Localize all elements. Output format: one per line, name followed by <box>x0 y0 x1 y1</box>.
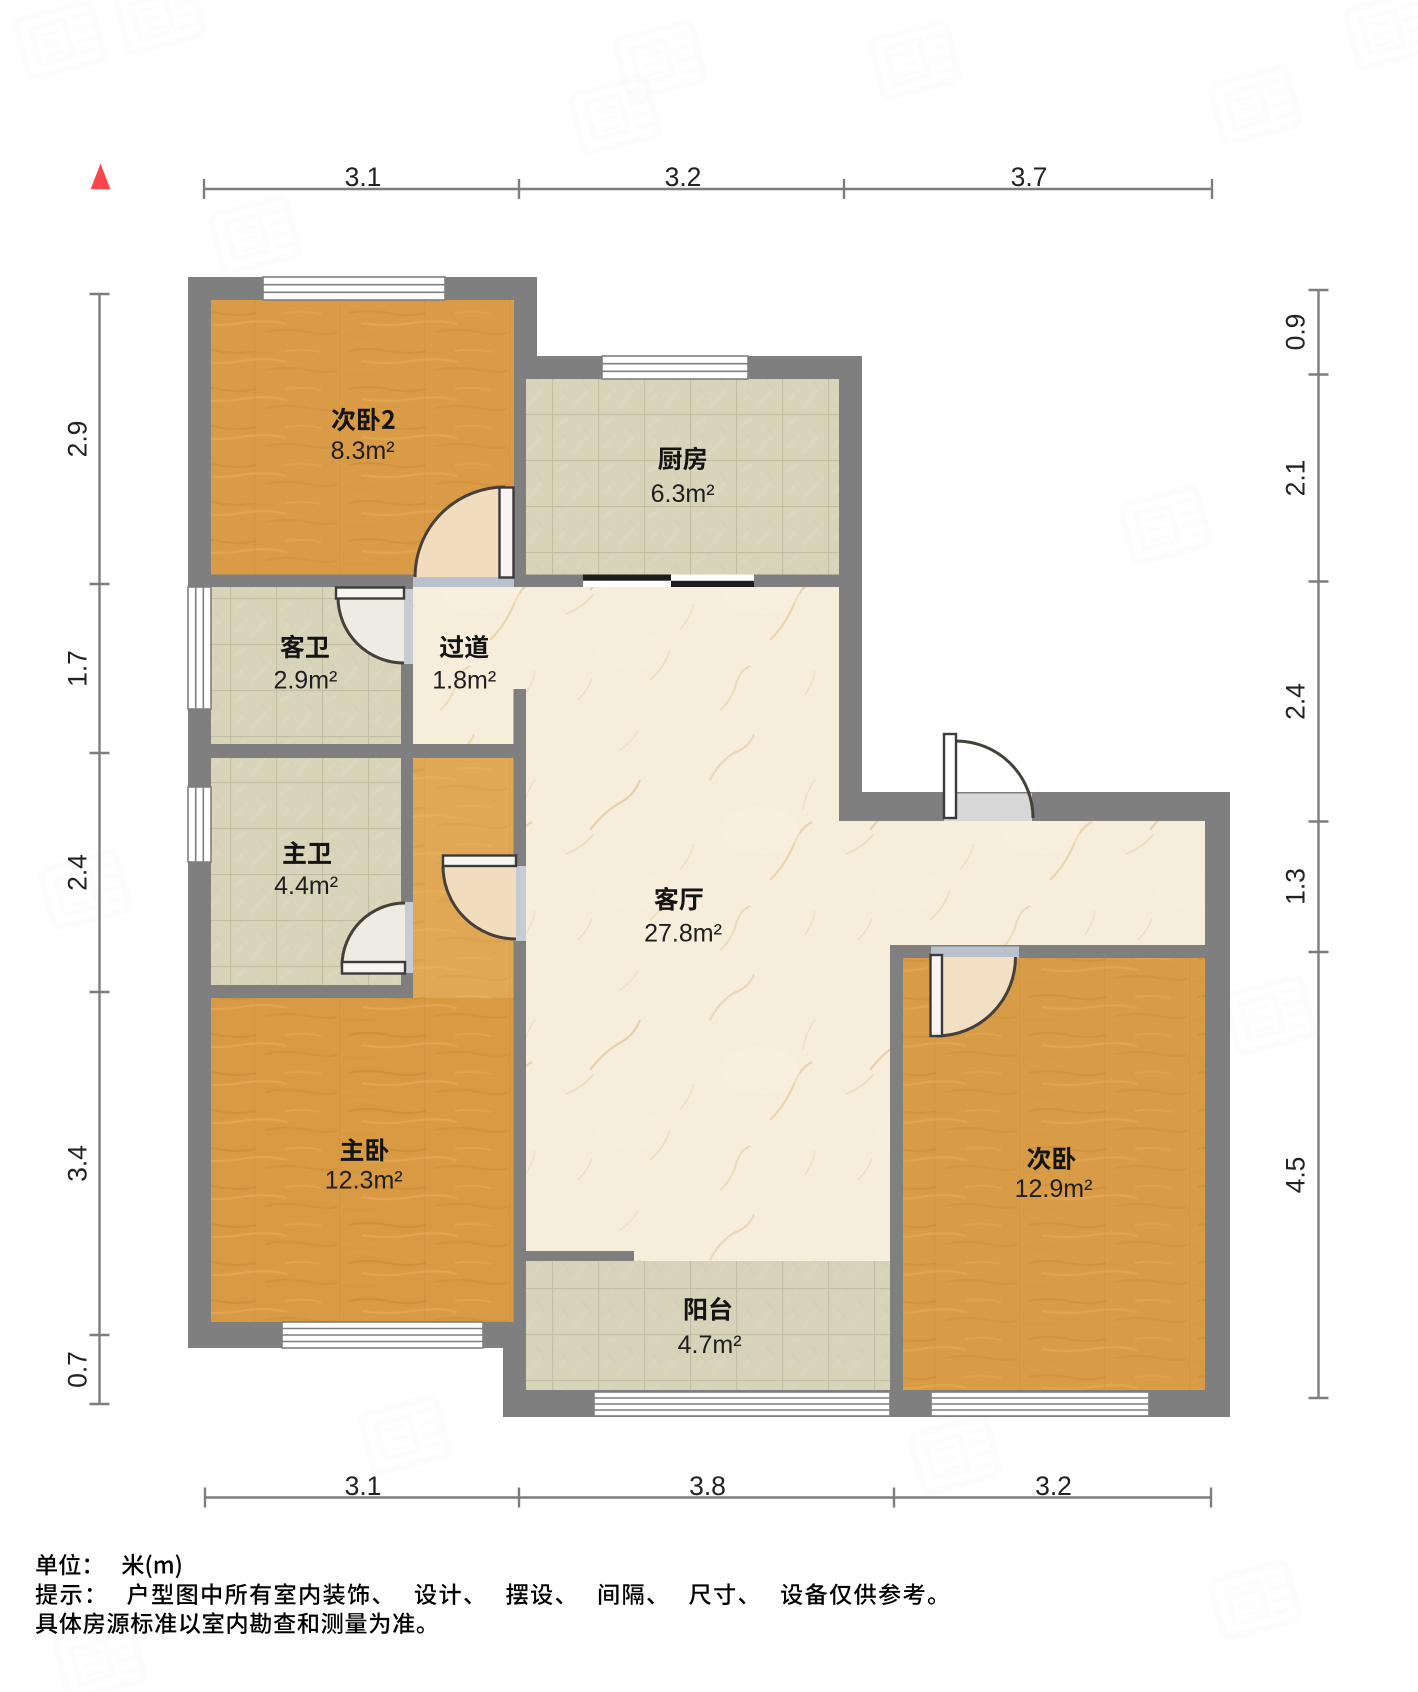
svg-text:8.3m²: 8.3m² <box>331 437 395 465</box>
svg-text:4.7m²: 4.7m² <box>678 1331 742 1359</box>
svg-text:3.4: 3.4 <box>63 1145 93 1182</box>
svg-text:3.2: 3.2 <box>1035 1471 1072 1501</box>
svg-text:12.9m²: 12.9m² <box>1015 1175 1093 1203</box>
svg-text:3.7: 3.7 <box>1011 162 1048 192</box>
svg-text:0.7: 0.7 <box>63 1351 93 1388</box>
svg-text:0.9: 0.9 <box>1281 314 1311 351</box>
svg-text:2.9: 2.9 <box>63 421 93 458</box>
svg-text:12.3m²: 12.3m² <box>325 1167 403 1195</box>
svg-text:3.2: 3.2 <box>665 162 702 192</box>
svg-text:1.3: 1.3 <box>1281 868 1311 905</box>
svg-text:2.1: 2.1 <box>1281 460 1311 497</box>
svg-text:1.7: 1.7 <box>63 650 93 687</box>
svg-text:3.1: 3.1 <box>345 162 382 192</box>
svg-text:27.8m²: 27.8m² <box>644 920 722 948</box>
svg-text:2.9m²: 2.9m² <box>273 667 337 695</box>
svg-text:3.1: 3.1 <box>345 1471 382 1501</box>
svg-text:1.8m²: 1.8m² <box>432 667 496 695</box>
svg-text:6.3m²: 6.3m² <box>651 480 715 508</box>
svg-text:2.4: 2.4 <box>1281 683 1311 720</box>
svg-text:3.8: 3.8 <box>689 1471 726 1501</box>
svg-text:2.4: 2.4 <box>63 854 93 891</box>
svg-text:4.4m²: 4.4m² <box>274 872 338 900</box>
svg-text:4.5: 4.5 <box>1281 1157 1311 1194</box>
